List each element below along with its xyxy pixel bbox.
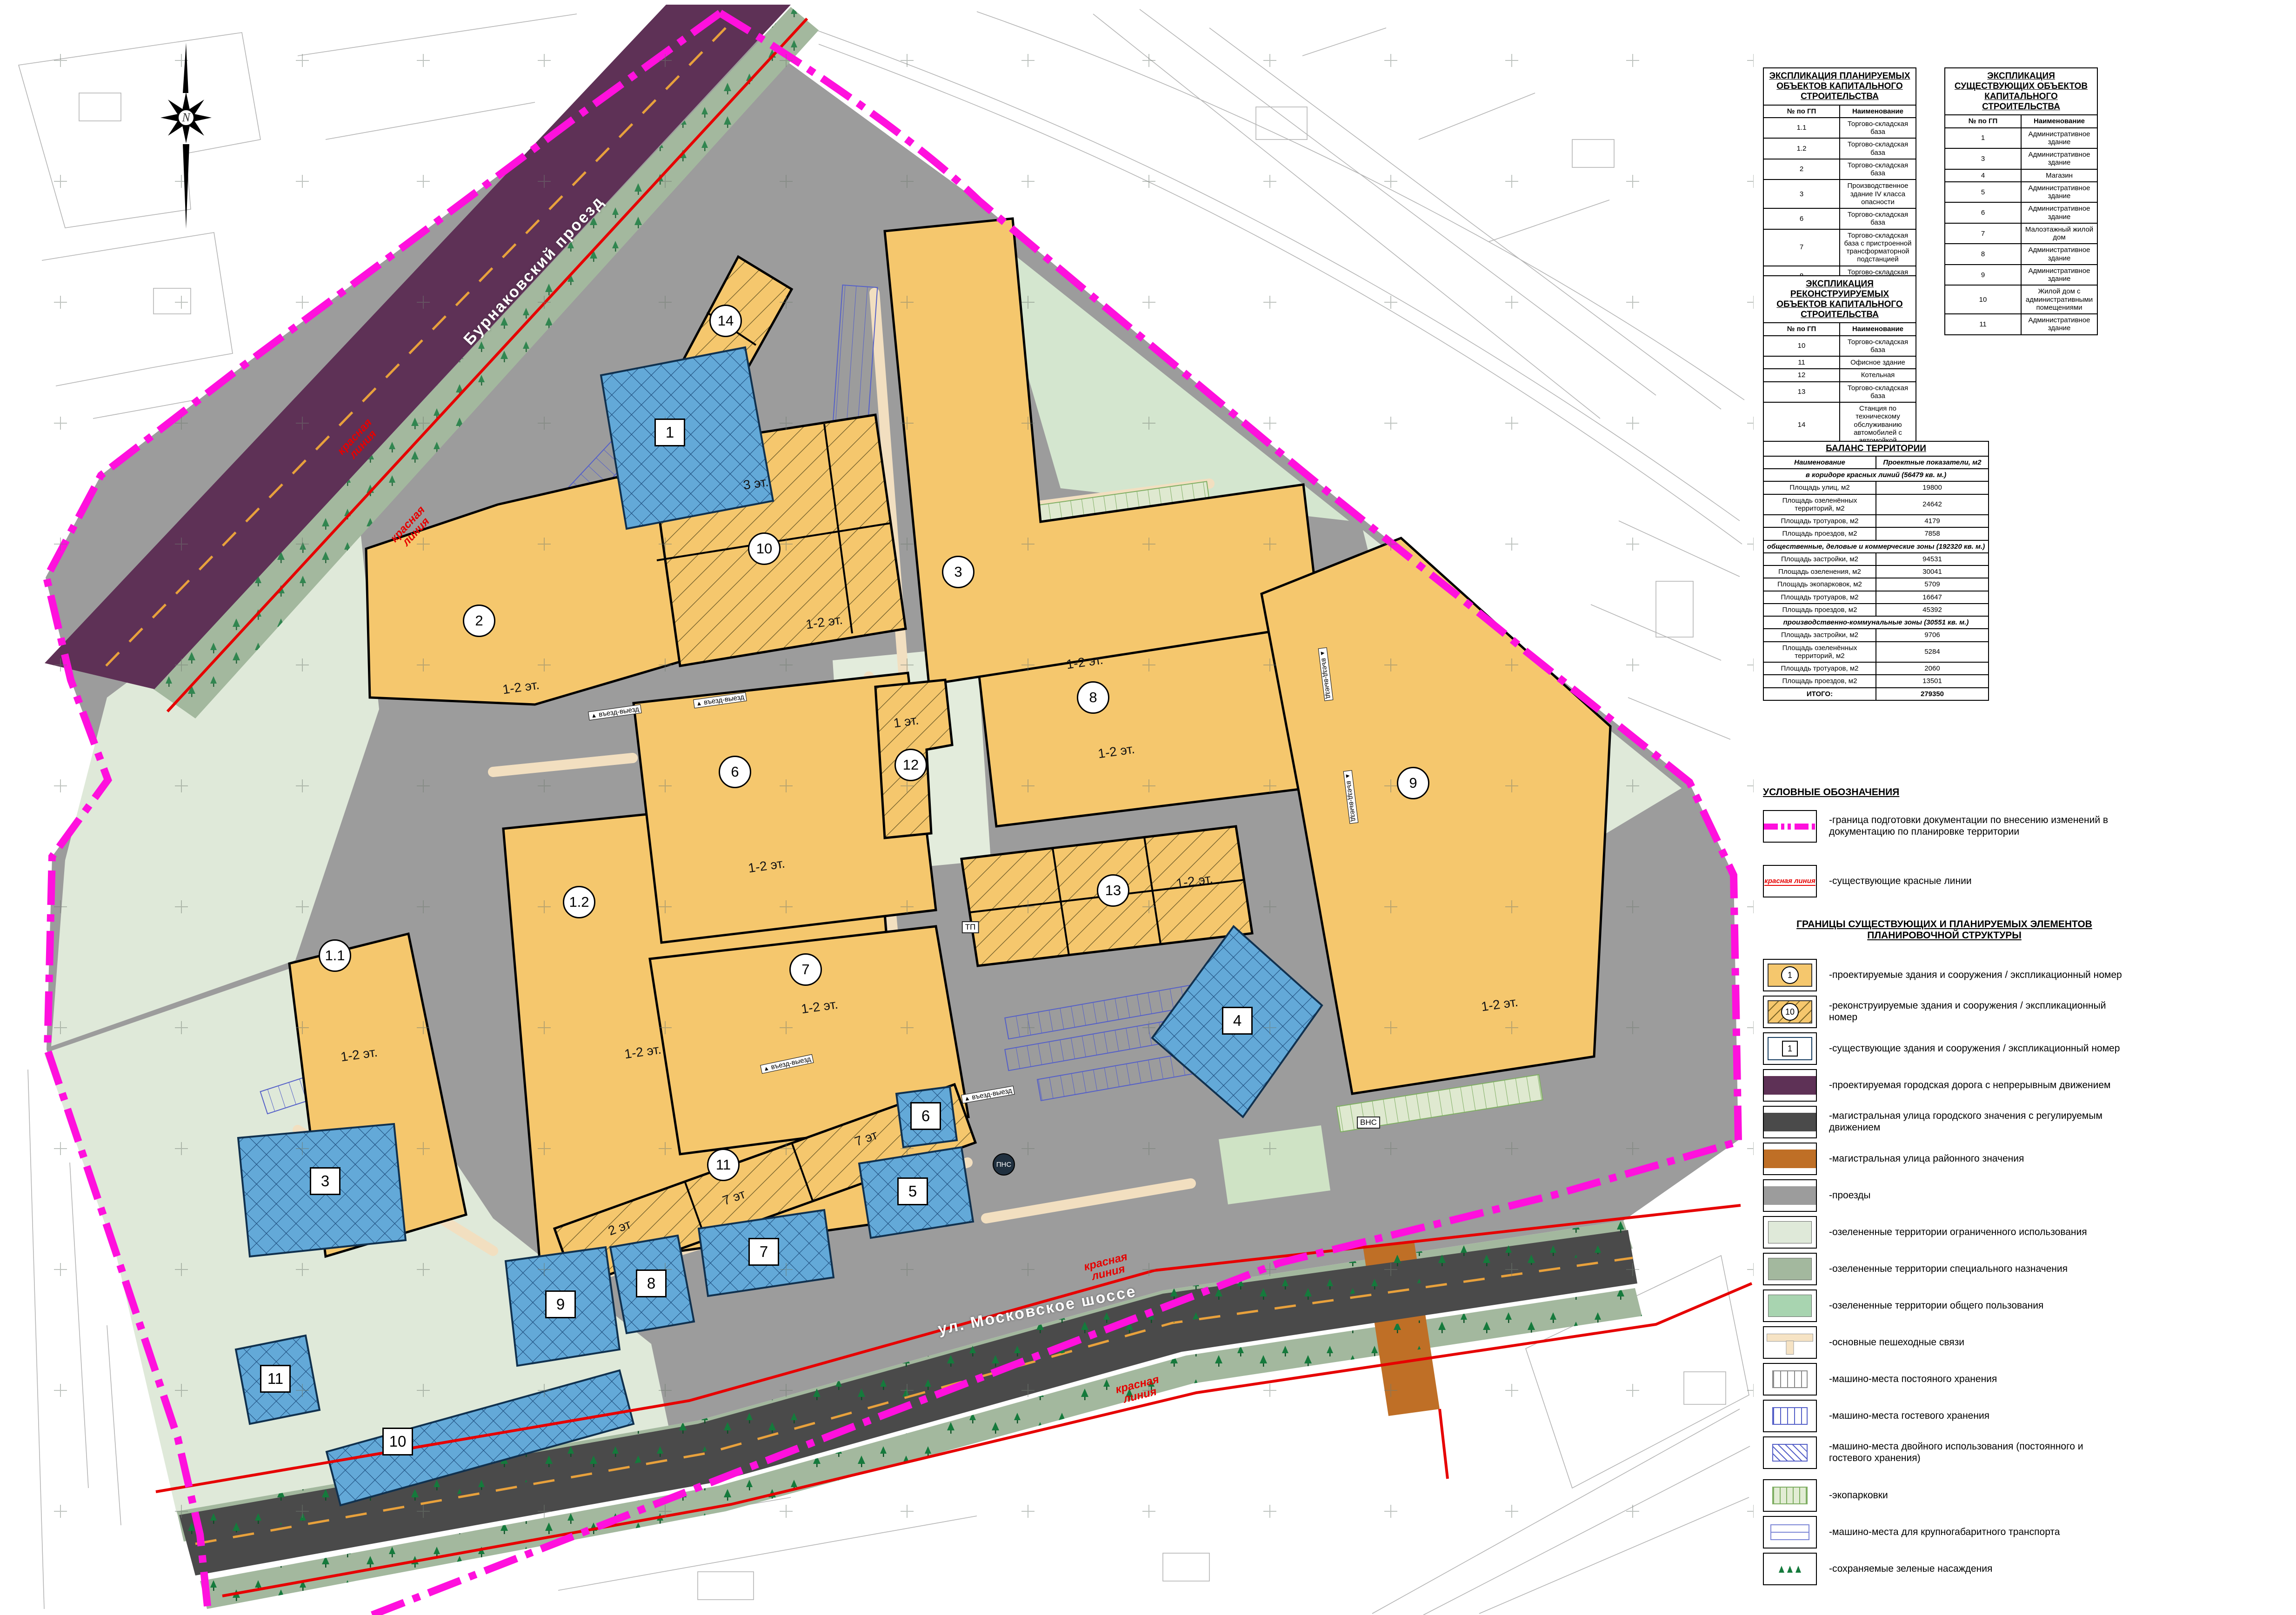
exist-swatch: 1 <box>1763 1032 1817 1065</box>
legend-subtitle: ГРАНИЦЫ СУЩЕСТВУЮЩИХ И ПЛАНИРУЕМЫХ ЭЛЕМЕ… <box>1763 919 2126 941</box>
gray-road-swatch <box>1763 1179 1817 1212</box>
green-public-swatch <box>1763 1289 1817 1322</box>
balance-row: Площадь тротуаров, м216647 <box>1763 591 1989 604</box>
existing-row: 5Административное здание <box>1945 182 2097 203</box>
park-guest-swatch <box>1763 1400 1817 1432</box>
legend-item-label: -магистральная улица районного значения <box>1829 1153 2127 1165</box>
masterplan-sheet: { "tables": { "planned": { "title": "ЭКС… <box>0 0 2296 1615</box>
legend-item-ped: -основные пешеходные связи <box>1763 1326 2127 1359</box>
reconstructed-row: 11Офисное здание <box>1763 356 1916 369</box>
map-canvas: Бурнаковский проездул. Московское шоссек… <box>0 0 1754 1615</box>
brown-road-swatch <box>1763 1143 1817 1175</box>
reconstructed-col-name: Наименование <box>1840 323 1916 335</box>
legend-item-park-guest: -машино-места гостевого хранения <box>1763 1400 2127 1432</box>
reconstructed-row: 12Котельная <box>1763 369 1916 381</box>
existing-col-num: № по ГП <box>1945 115 2021 127</box>
legend-item-label: -машино-места для крупногабаритного тран… <box>1829 1527 2127 1538</box>
balance-row: Площадь застройки, м29706 <box>1763 629 1989 641</box>
planned-row: 6Торгово-складская база <box>1763 208 1916 229</box>
balance-row: Площадь застройки, м294531 <box>1763 553 1989 565</box>
table-planned-objects: ЭКСПЛИКАЦИЯ ПЛАНИРУЕМЫХ ОБЪЕКТОВ КАПИТАЛ… <box>1763 67 1916 308</box>
legend-item-label: -сохраняемые зеленые насаждения <box>1829 1563 2127 1575</box>
legend-item-park-perm: -машино-места постояного хранения <box>1763 1363 2127 1396</box>
planned-col-num: № по ГП <box>1763 105 1840 118</box>
reconstructed-col-num: № по ГП <box>1763 323 1840 335</box>
balance-row: Площадь проездов, м245392 <box>1763 604 1989 616</box>
boundary-line-swatch <box>1764 824 1816 830</box>
existing-row: 8Административное здание <box>1945 244 2097 265</box>
green-special-swatch <box>1763 1253 1817 1285</box>
legend-item-exist: 1-существующие здания и сооружения / экс… <box>1763 1032 2127 1065</box>
legend-item-park-dual: -машино-места двойного использования (по… <box>1763 1436 2127 1469</box>
legend-item-recon: 10-реконструируемые здания и сооружения … <box>1763 996 2127 1028</box>
park-perm-swatch <box>1763 1363 1817 1396</box>
purple-road-swatch <box>1763 1069 1817 1102</box>
reconstructed-row: 10Торгово-складская база <box>1763 336 1916 357</box>
legend-item-label: -машино-места гостевого хранения <box>1829 1410 2127 1422</box>
legend-item-green-limited: -озелененные территории ограниченного ис… <box>1763 1216 2127 1249</box>
legend-item-label: -машино-места постояного хранения <box>1829 1374 2127 1385</box>
legend-item-label: -экопарковки <box>1829 1490 2127 1502</box>
existing-row: 7Малоэтажный жилой дом <box>1945 223 2097 244</box>
legend-item-eco: -экопарковки <box>1763 1479 2127 1512</box>
legend-item-label: -проектируемая городская дорога с непрер… <box>1829 1080 2127 1091</box>
legend-item-green-public: -озелененные территории общего пользован… <box>1763 1289 2127 1322</box>
legend-item-label: -существующие красные линии <box>1829 876 2127 887</box>
legend-item-gray-road: -проезды <box>1763 1179 2127 1212</box>
reconstructed-title: ЭКСПЛИКАЦИЯ РЕКОНСТРУИРУЕМЫХ ОБЪЕКТОВ КА… <box>1763 276 1916 323</box>
existing-row: 9Административное здание <box>1945 265 2097 286</box>
legend-item-label: -озелененные территории общего пользован… <box>1829 1300 2127 1312</box>
green-limited-swatch <box>1763 1216 1817 1249</box>
planned-row: 1.1Торгово-складская база <box>1763 118 1916 139</box>
existing-row: 6Административное здание <box>1945 202 2097 223</box>
planned-row: 2Торгово-складская база <box>1763 159 1916 180</box>
legend-item-purple-road: -проектируемая городская дорога с непрер… <box>1763 1069 2127 1102</box>
legend-item-label: -машино-места двойного использования (по… <box>1829 1441 2127 1464</box>
balance-row: Площадь проездов, м27858 <box>1763 527 1989 540</box>
red-line-swatch: красная линия <box>1764 877 1815 886</box>
planned-row: 3Производственное здание IV класса опасн… <box>1763 179 1916 208</box>
legend-item-label: -реконструируемые здания и сооружения / … <box>1829 1000 2127 1023</box>
legend-item-label: -магистральная улица городского значения… <box>1829 1110 2127 1134</box>
planned-title: ЭКСПЛИКАЦИЯ ПЛАНИРУЕМЫХ ОБЪЕКТОВ КАПИТАЛ… <box>1763 68 1916 105</box>
legend-item-label: -существующие здания и сооружения / эксп… <box>1829 1043 2127 1055</box>
trees-swatch <box>1763 1553 1817 1585</box>
legend-item-boundary: -граница подготовки документации по внес… <box>1763 810 2127 843</box>
balance-row: Площадь проездов, м213501 <box>1763 675 1989 687</box>
info-panel: ЭКСПЛИКАЦИЯ ПЛАНИРУЕМЫХ ОБЪЕКТОВ КАПИТАЛ… <box>1754 0 2296 1615</box>
masterplan-drawing <box>0 0 1754 1615</box>
planned-row: 1.2Торгово-складская база <box>1763 138 1916 159</box>
balance-row: Площадь улиц, м219800 <box>1763 481 1989 494</box>
existing-row: 10Жилой дом с административными помещени… <box>1945 285 2097 314</box>
table-reconstructed-objects: ЭКСПЛИКАЦИЯ РЕКОНСТРУИРУЕМЫХ ОБЪЕКТОВ КА… <box>1763 275 1916 447</box>
balance-row: Площадь озеленённых территорий, м224642 <box>1763 494 1989 515</box>
existing-row: 11Административное здание <box>1945 314 2097 335</box>
balance-section: общественные, деловые и коммерческие зон… <box>1763 540 1989 553</box>
eco-swatch <box>1763 1479 1817 1512</box>
balance-row: Площадь тротуаров, м22060 <box>1763 662 1989 675</box>
reconstructed-row: 14Станция по техническому обслуживанию а… <box>1763 402 1916 447</box>
legend-item-green-special: -озелененные территории специального наз… <box>1763 1253 2127 1285</box>
existing-row: 4Магазин <box>1945 169 2097 182</box>
recon-swatch: 10 <box>1763 996 1817 1028</box>
existing-row: 3Административное здание <box>1945 148 2097 169</box>
ped-swatch <box>1763 1326 1817 1359</box>
legend-item-label: -озелененные территории ограниченного ис… <box>1829 1227 2127 1238</box>
legend-item-label: -граница подготовки документации по внес… <box>1829 815 2127 838</box>
planned-row: 7Торгово-складская база с пристроенной т… <box>1763 229 1916 266</box>
legend-item-brown-road: -магистральная улица районного значения <box>1763 1143 2127 1175</box>
balance-row: Площадь озеленения, м230041 <box>1763 565 1989 578</box>
reconstructed-row: 13Торгово-складская база <box>1763 382 1916 403</box>
balance-title: БАЛАНС ТЕРРИТОРИИ <box>1763 441 1989 456</box>
legend-item-trees: -сохраняемые зеленые насаждения <box>1763 1553 2127 1585</box>
legend-item-park-large: -машино-места для крупногабаритного тран… <box>1763 1516 2127 1549</box>
planned-col-name: Наименование <box>1840 105 1916 118</box>
existing-title: ЭКСПЛИКАЦИЯ СУЩЕСТВУЮЩИХ ОБЪЕКТОВ КАПИТА… <box>1945 68 2097 115</box>
balance-row: Площадь экопарковок, м25709 <box>1763 578 1989 591</box>
balance-row: Площадь тротуаров, м24179 <box>1763 515 1989 527</box>
redline-swatch: красная линия <box>1763 865 1817 897</box>
balance-row: Площадь озеленённых территорий, м25284 <box>1763 642 1989 663</box>
existing-col-name: Наименование <box>2021 115 2097 127</box>
legend-item-label: -основные пешеходные связи <box>1829 1337 2127 1349</box>
table-territory-balance: БАЛАНС ТЕРРИТОРИИНаименованиеПроектные п… <box>1763 441 1989 701</box>
existing-row: 1Административное здание <box>1945 128 2097 149</box>
legend-item-redline: красная линия-существующие красные линии <box>1763 865 2127 897</box>
legend-item-label: -озелененные территории специального наз… <box>1829 1263 2127 1275</box>
balance-total: ИТОГО:279350 <box>1763 688 1989 700</box>
survey-grid <box>0 0 1754 1615</box>
legend-title: УСЛОВНЫЕ ОБОЗНАЧЕНИЯ <box>1763 787 1899 798</box>
legend-item-dark-road: -магистральная улица городского значения… <box>1763 1106 2127 1138</box>
park-large-swatch <box>1763 1516 1817 1549</box>
legend-item-planned: 1-проектируемые здания и сооружения / эк… <box>1763 959 2127 991</box>
boundary-swatch <box>1763 810 1817 843</box>
planned-swatch: 1 <box>1763 959 1817 991</box>
legend-item-label: -проектируемые здания и сооружения / экс… <box>1829 970 2127 981</box>
balance-section: производственно-коммунальные зоны (30551… <box>1763 616 1989 629</box>
dark-road-swatch <box>1763 1106 1817 1138</box>
park-dual-swatch <box>1763 1436 1817 1469</box>
table-existing-objects: ЭКСПЛИКАЦИЯ СУЩЕСТВУЮЩИХ ОБЪЕКТОВ КАПИТА… <box>1944 67 2098 335</box>
legend-item-label: -проезды <box>1829 1190 2127 1202</box>
balance-section: в коридоре красных линий (56479 кв. м.) <box>1763 469 1989 481</box>
